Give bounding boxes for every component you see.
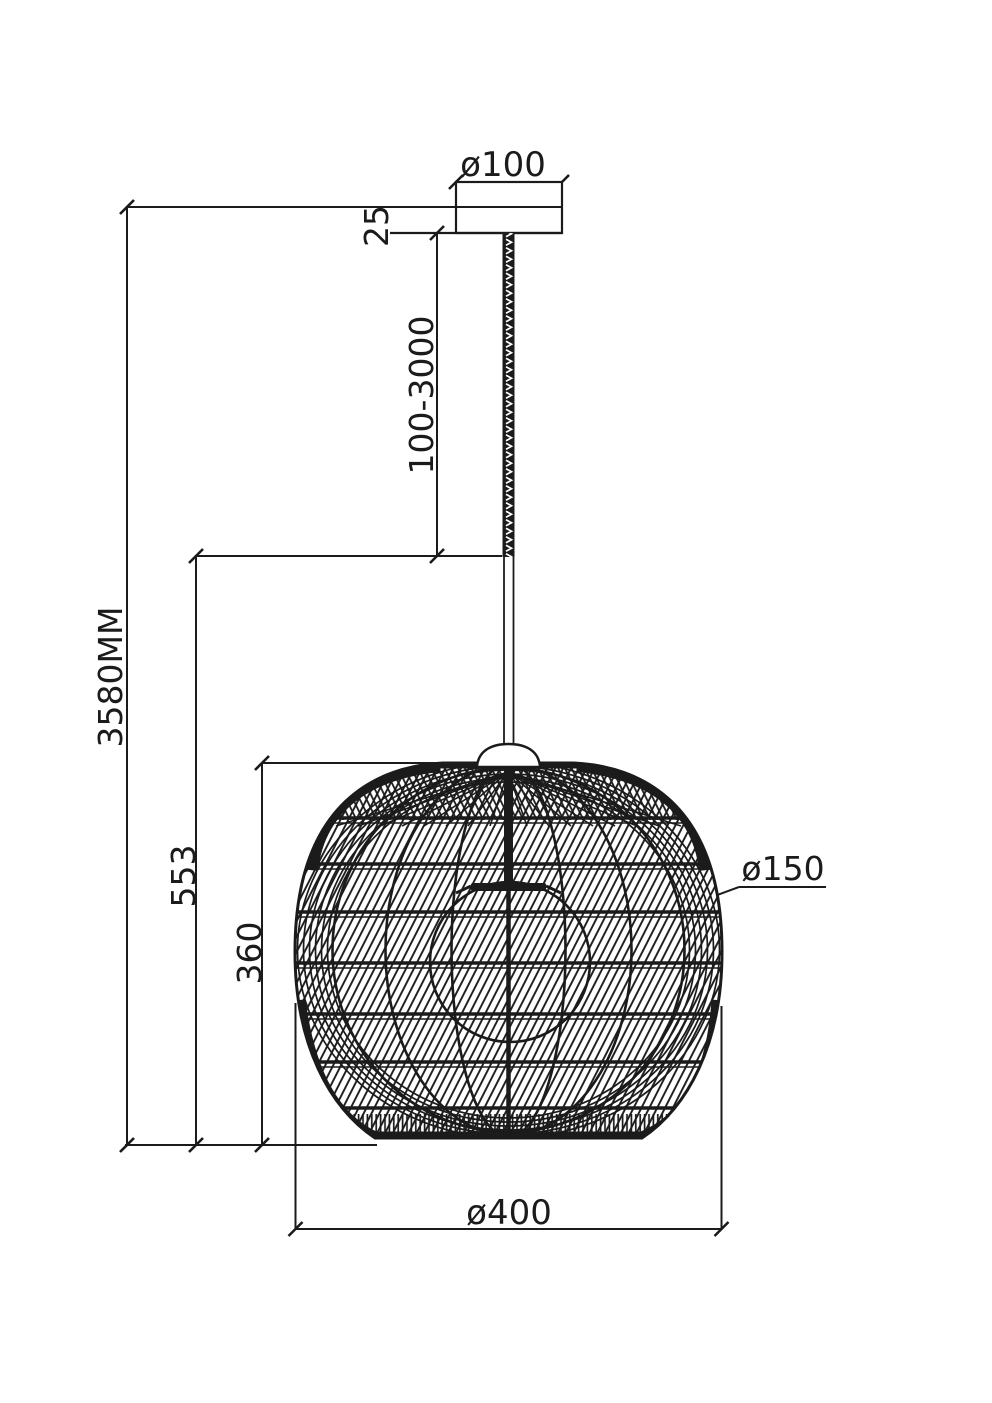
dim-label-drop-height: 553 xyxy=(164,845,203,908)
dim-label-shade-diameter: ø400 xyxy=(466,1193,552,1233)
dim-label-canopy-height: 25 xyxy=(357,205,396,247)
inner-rod xyxy=(504,762,513,884)
dim-label-bulb-diameter: ø150 xyxy=(741,849,824,888)
drawing-canvas: ø100 25 100-3000 3580MM 553 360 ø150 ø40… xyxy=(0,0,992,1403)
dim-label-shade-height: 360 xyxy=(230,922,269,985)
suspension-rod xyxy=(504,556,514,750)
lampshade-sphere xyxy=(290,758,727,1144)
pendant-lamp-technical-drawing: ø100 25 100-3000 3580MM 553 360 ø150 ø40… xyxy=(0,0,992,1403)
ceiling-canopy xyxy=(127,182,562,233)
suspension-cable xyxy=(503,233,515,557)
dim-label-canopy-diameter: ø100 xyxy=(460,145,546,185)
dim-label-overall-height: 3580MM xyxy=(91,607,130,748)
shade-top-cap xyxy=(477,744,540,767)
dim-label-cable-range: 100-3000 xyxy=(402,316,441,475)
